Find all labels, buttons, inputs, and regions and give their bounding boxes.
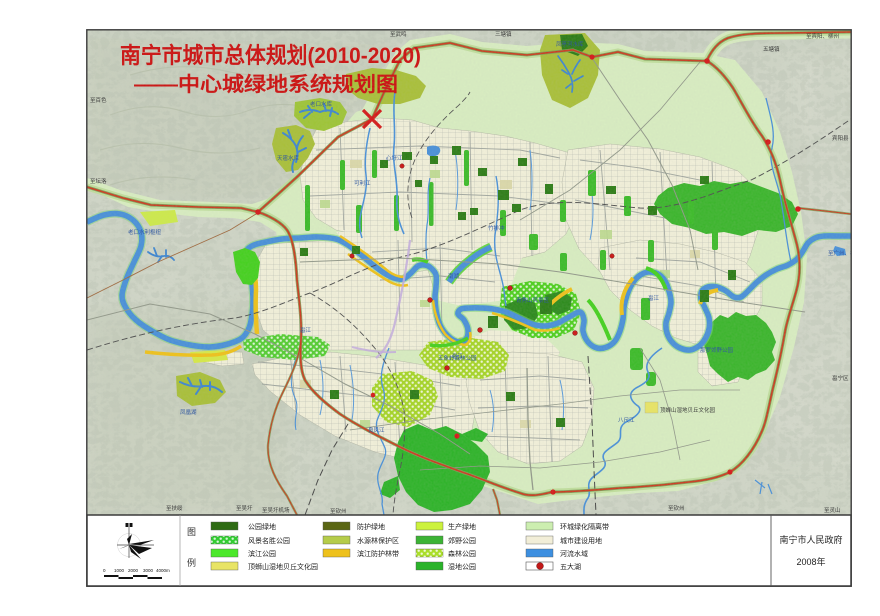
svg-text:1000: 1000 (114, 568, 125, 573)
svg-text:4000m: 4000m (156, 568, 170, 573)
svg-text:水源林保护区: 水源林保护区 (357, 536, 399, 545)
svg-text:防护绿地: 防护绿地 (357, 522, 385, 531)
svg-text:例: 例 (187, 557, 196, 568)
svg-text:风景名胜公园: 风景名胜公园 (248, 536, 290, 545)
svg-text:湿地公园: 湿地公园 (448, 562, 476, 571)
svg-text:顶蛳山湿地贝丘文化园: 顶蛳山湿地贝丘文化园 (248, 562, 318, 571)
svg-text:郊野公园: 郊野公园 (448, 536, 476, 545)
svg-text:图: 图 (187, 527, 196, 537)
svg-text:森林公园: 森林公园 (448, 549, 476, 558)
svg-text:城市建设用地: 城市建设用地 (560, 536, 602, 545)
svg-text:五大湖: 五大湖 (560, 562, 581, 571)
svg-text:2000: 2000 (128, 568, 139, 573)
svg-text:生产绿地: 生产绿地 (448, 522, 476, 531)
svg-text:滨江公园: 滨江公园 (248, 549, 276, 558)
svg-text:滨江防护林带: 滨江防护林带 (357, 549, 399, 558)
svg-text:3000: 3000 (143, 568, 154, 573)
svg-text:公园绿地: 公园绿地 (248, 522, 276, 531)
svg-text:2008年: 2008年 (796, 556, 825, 567)
svg-text:河流水域: 河流水域 (560, 549, 588, 558)
svg-text:环城绿化隔离带: 环城绿化隔离带 (560, 522, 609, 531)
svg-text:南宁市人民政府: 南宁市人民政府 (779, 534, 842, 545)
